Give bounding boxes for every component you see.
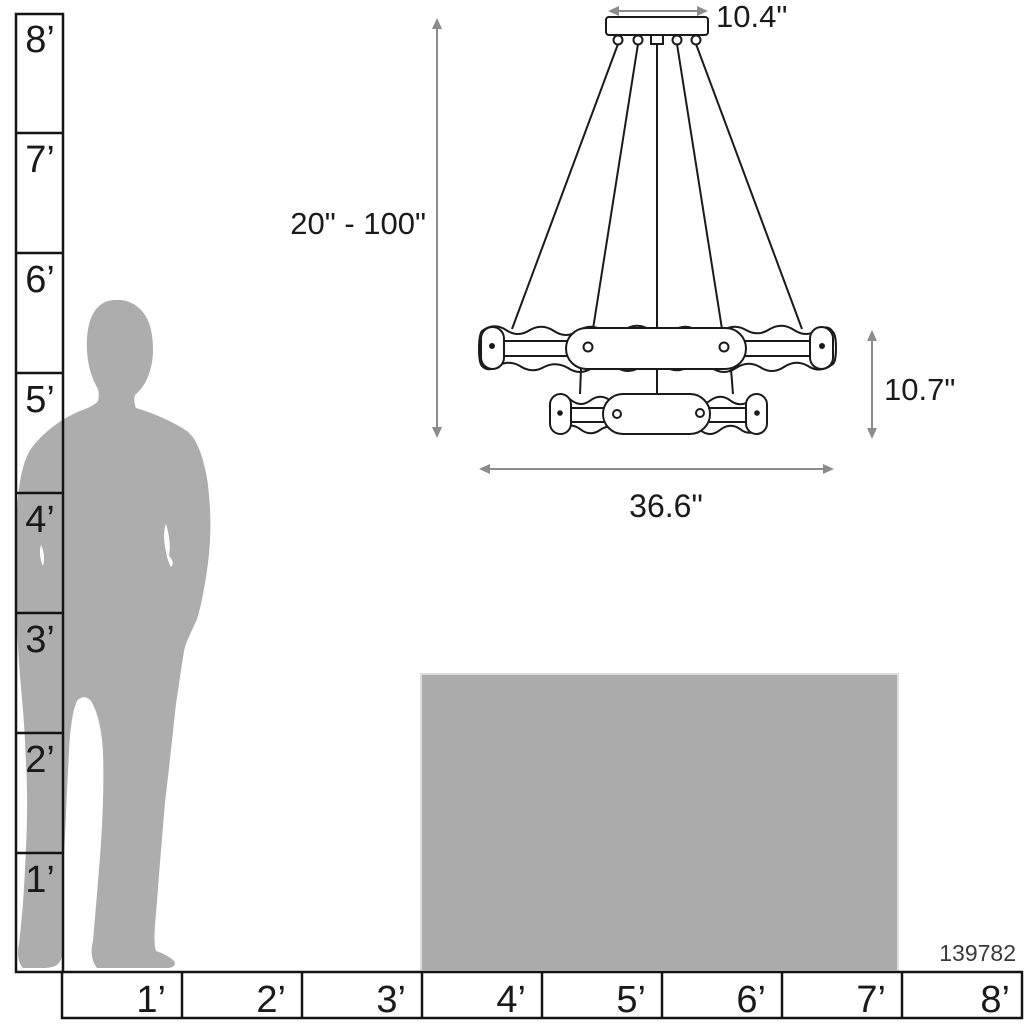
arrowhead-right [823, 464, 834, 474]
vertical-ruler-label-4ft: 4’ [16, 500, 64, 541]
vertical-ruler-label-1ft: 1’ [16, 860, 64, 901]
finial-dot [819, 343, 825, 349]
cable-connector [634, 36, 643, 45]
cable-connector [614, 36, 623, 45]
arrowhead-right [697, 6, 708, 16]
finial-dot [754, 410, 760, 416]
suspension-cable [696, 44, 802, 329]
diagram-graphics [0, 0, 1024, 1024]
tier-cable [580, 369, 581, 394]
horizontal-ruler-label-8ft: 8’ [902, 980, 1010, 1020]
fixture-height-label: 10.7" [884, 373, 955, 406]
canopy [606, 17, 708, 35]
arrowhead-down [867, 428, 877, 439]
horizontal-ruler-label-6ft: 6’ [662, 980, 766, 1020]
size-diagram: 8’ 7’ 6’ 5’ 4’ 3’ 2’ 1’ 1’ 2’ 3’ 4’ 5’ 6… [0, 0, 1024, 1024]
arrowhead-up [432, 18, 442, 29]
center-connector [651, 35, 663, 44]
arrowhead-left [479, 464, 490, 474]
arrowhead-down [432, 427, 442, 438]
product-number: 139782 [890, 941, 1016, 966]
vertical-ruler-label-6ft: 6’ [16, 260, 64, 301]
chandelier-drawing [479, 17, 836, 434]
vertical-ruler-label-5ft: 5’ [16, 380, 64, 421]
vertical-ruler-label-3ft: 3’ [16, 620, 64, 661]
canopy-width-label: 10.4" [716, 0, 787, 33]
suspension-range-label: 20" - 100" [260, 207, 426, 240]
horizontal-ruler-label-1ft: 1’ [62, 980, 166, 1020]
arrowhead-up [867, 330, 877, 341]
finial-dot [557, 410, 563, 416]
tier-cable [731, 369, 733, 394]
vertical-ruler-label-7ft: 7’ [16, 140, 64, 181]
suspension-cable [512, 44, 618, 329]
horizontal-ruler-label-2ft: 2’ [182, 980, 286, 1020]
horizontal-ruler-label-5ft: 5’ [542, 980, 646, 1020]
horizontal-ruler-label-7ft: 7’ [782, 980, 886, 1020]
fixture-width-label: 36.6" [590, 489, 742, 524]
cable-connector [692, 36, 701, 45]
finial-dot [489, 343, 495, 349]
table-block [421, 674, 898, 971]
suspension-cable [593, 44, 638, 329]
arrowhead-left [608, 6, 619, 16]
vertical-ruler-label-2ft: 2’ [16, 740, 64, 781]
lower-ring-center-shade [603, 394, 710, 434]
suspension-cable [677, 44, 722, 329]
horizontal-ruler-label-3ft: 3’ [302, 980, 406, 1020]
vertical-ruler-label-8ft: 8’ [16, 20, 64, 61]
cable-connector [673, 36, 682, 45]
horizontal-ruler-label-4ft: 4’ [422, 980, 526, 1020]
